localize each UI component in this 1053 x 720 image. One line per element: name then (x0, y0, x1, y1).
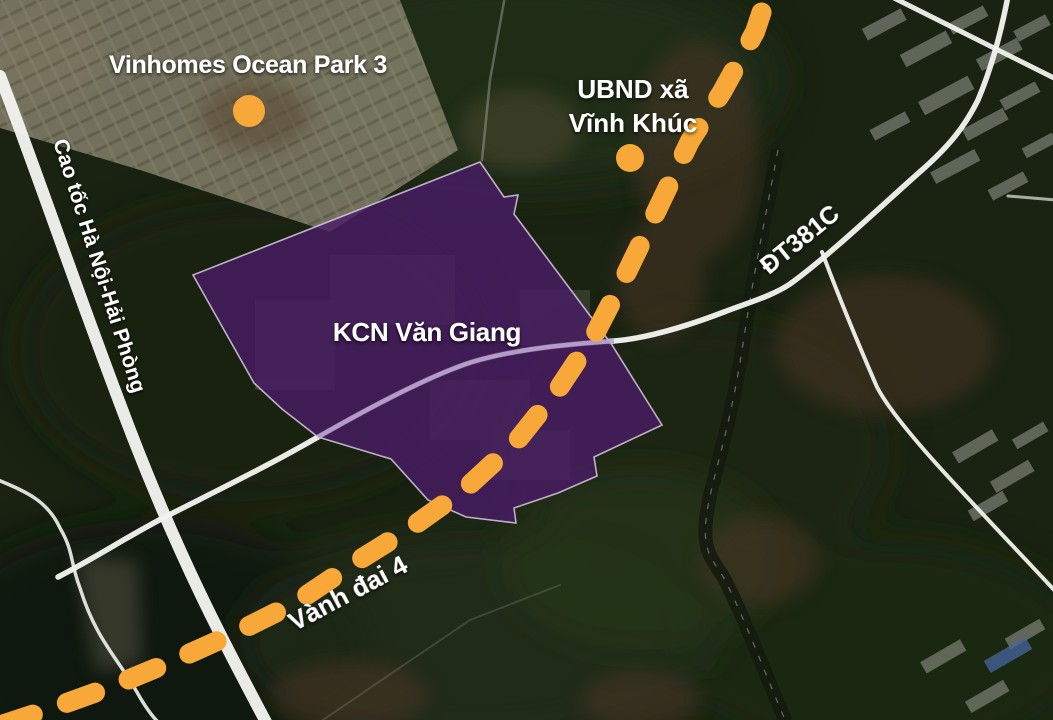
label-kcn-van-giang: KCN Văn Giang (333, 317, 521, 347)
map-container: Vinhomes Ocean Park 3 UBND xã Vĩnh Khúc … (0, 0, 1053, 720)
label-vinhomes-ocean-park-3: Vinhomes Ocean Park 3 (109, 51, 387, 79)
poi-marker-dot-vinhomes (233, 95, 265, 127)
poi-marker-dot-ubnd (616, 144, 644, 172)
map-canvas[interactable]: Vinhomes Ocean Park 3 UBND xã Vĩnh Khúc … (0, 0, 1053, 720)
label-ubnd-line2: Vĩnh Khúc (569, 108, 698, 138)
label-ubnd-line1: UBND xã (577, 74, 689, 104)
